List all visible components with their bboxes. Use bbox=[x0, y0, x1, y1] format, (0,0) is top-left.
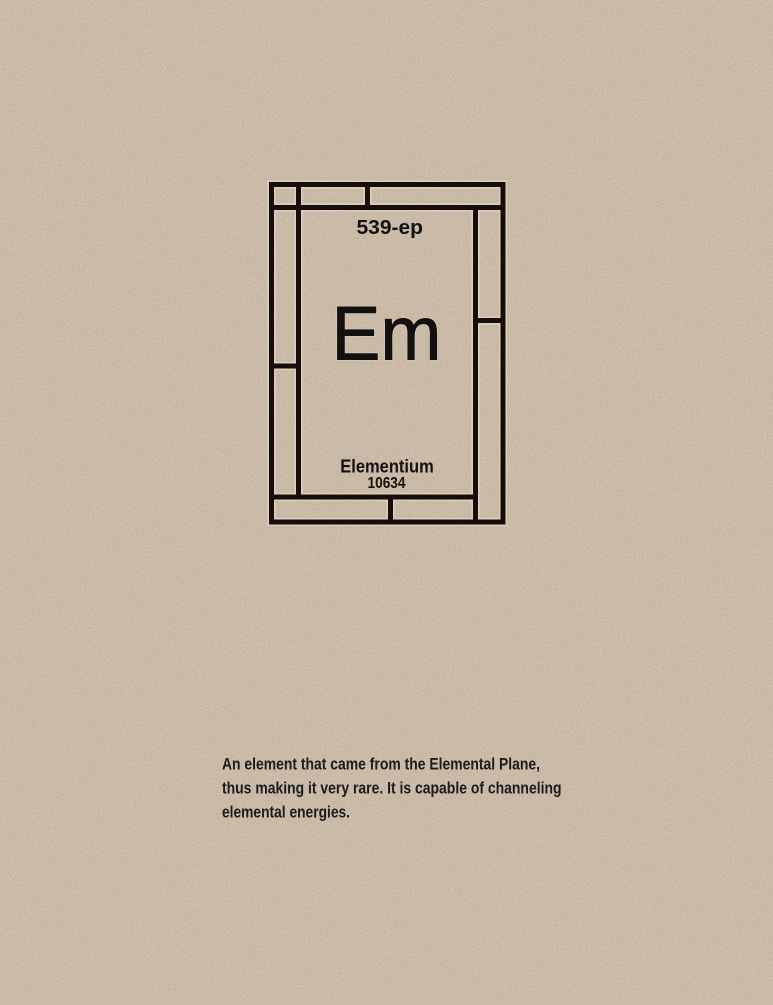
svg-text:Em: Em bbox=[332, 292, 442, 377]
svg-text:10634: 10634 bbox=[368, 475, 406, 492]
svg-text:539-ep: 539-ep bbox=[357, 217, 424, 239]
svg-text:Elementium: Elementium bbox=[340, 456, 434, 477]
svg-text:thus making it very rare. It i: thus making it very rare. It is capable … bbox=[222, 779, 562, 798]
svg-text:An element that came from the: An element that came from the Elemental … bbox=[222, 755, 540, 774]
svg-text:elemental energies.: elemental energies. bbox=[222, 803, 350, 822]
